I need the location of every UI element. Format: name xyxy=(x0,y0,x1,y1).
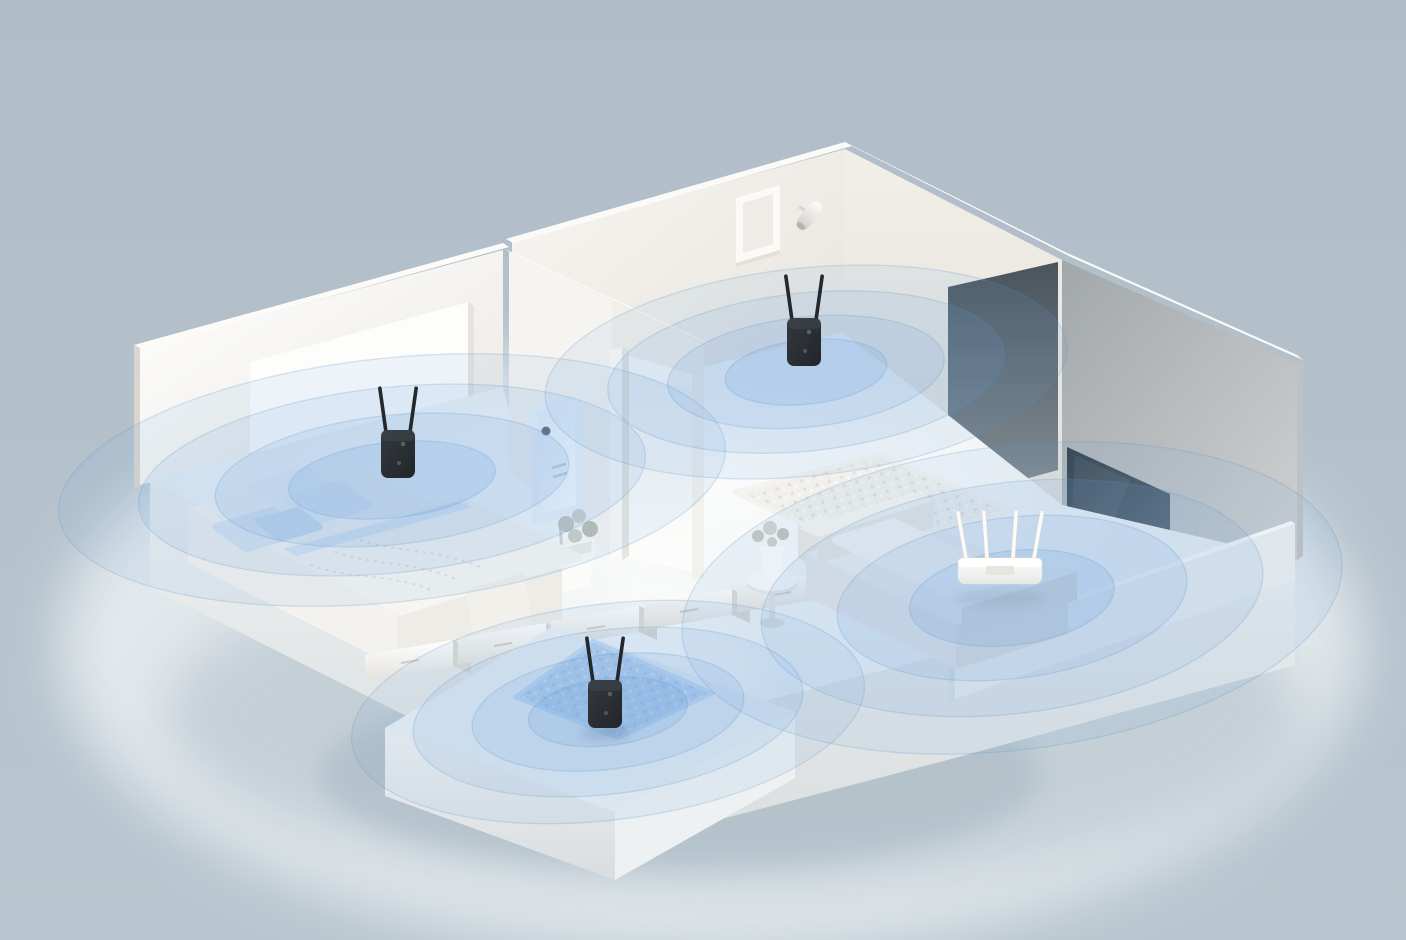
isometric-scene xyxy=(0,0,1406,940)
router-label xyxy=(986,566,1014,575)
picture-frame-inner xyxy=(743,194,773,253)
wifi-coverage-illustration: 3D cutaway of an apartment: a four-anten… xyxy=(0,0,1406,940)
